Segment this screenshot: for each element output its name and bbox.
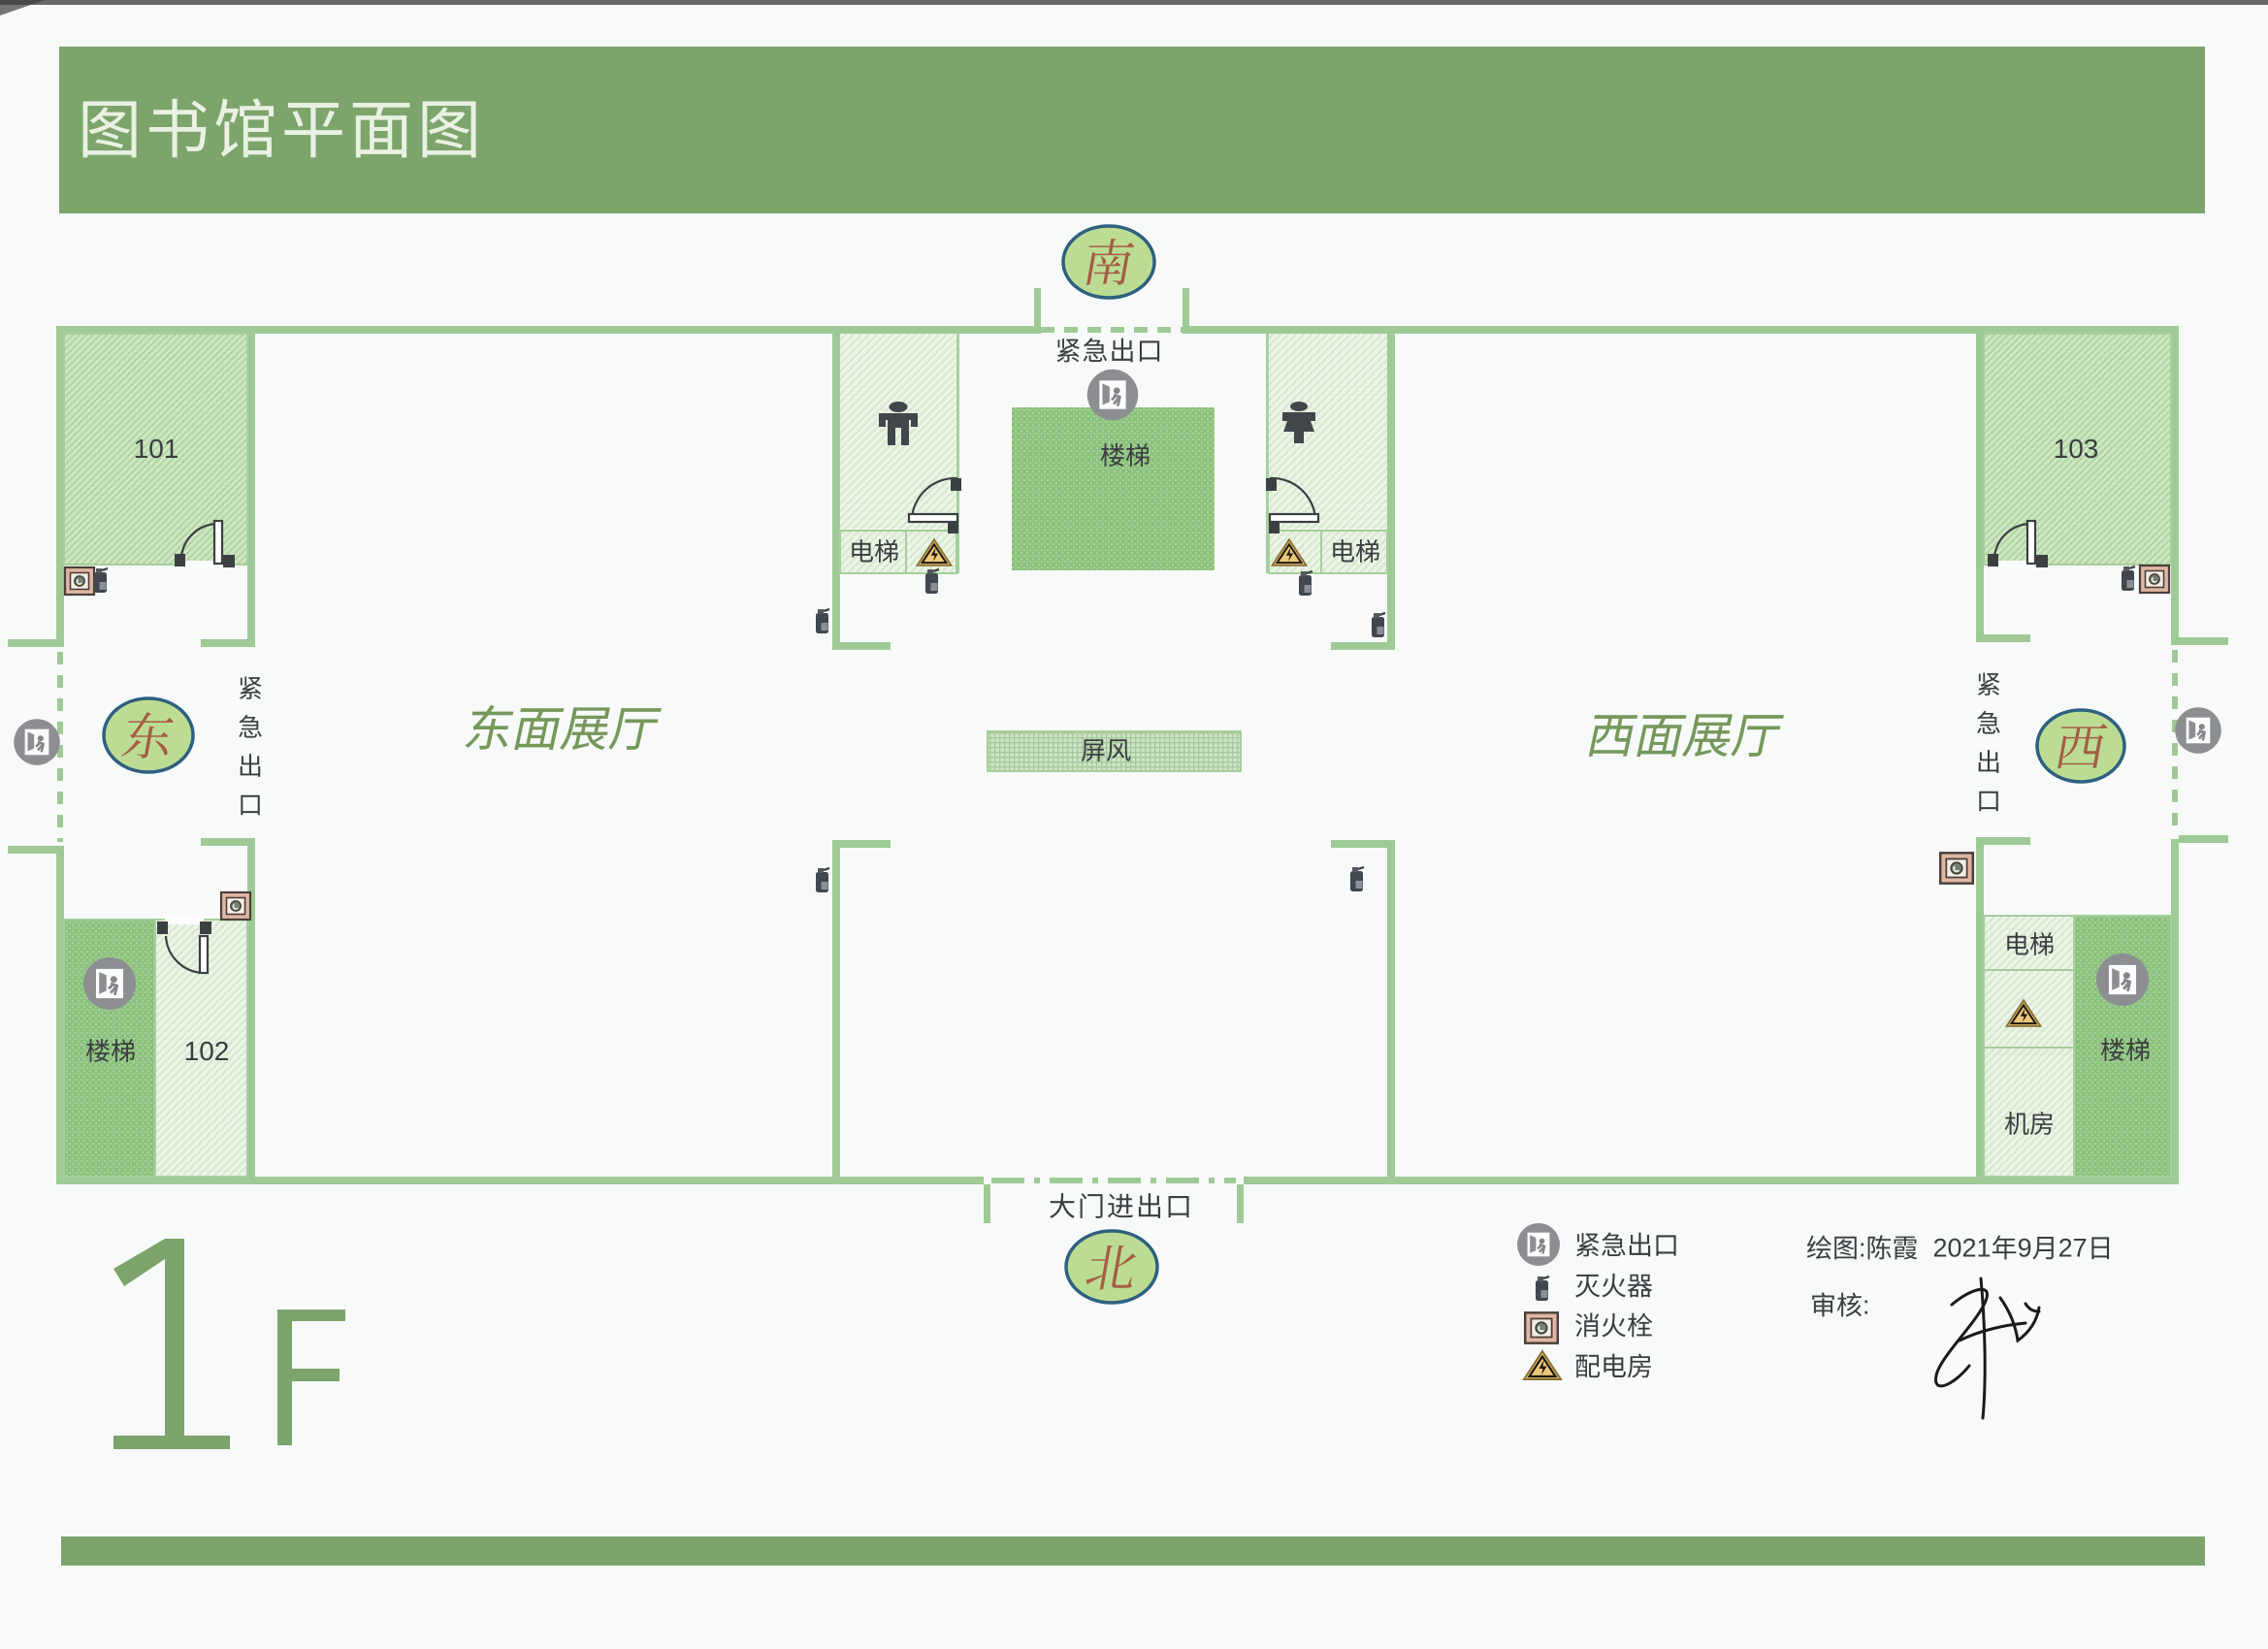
svg-text:27: 27 <box>2058 1234 2088 1263</box>
svg-text:9: 9 <box>2018 1234 2032 1263</box>
svg-text:102: 102 <box>184 1036 230 1066</box>
svg-text:103: 103 <box>2054 434 2099 464</box>
svg-text:2021: 2021 <box>1933 1234 1992 1263</box>
svg-text::: : <box>1859 1234 1866 1263</box>
svg-text:101: 101 <box>134 434 179 464</box>
svg-text::: : <box>1863 1291 1870 1320</box>
